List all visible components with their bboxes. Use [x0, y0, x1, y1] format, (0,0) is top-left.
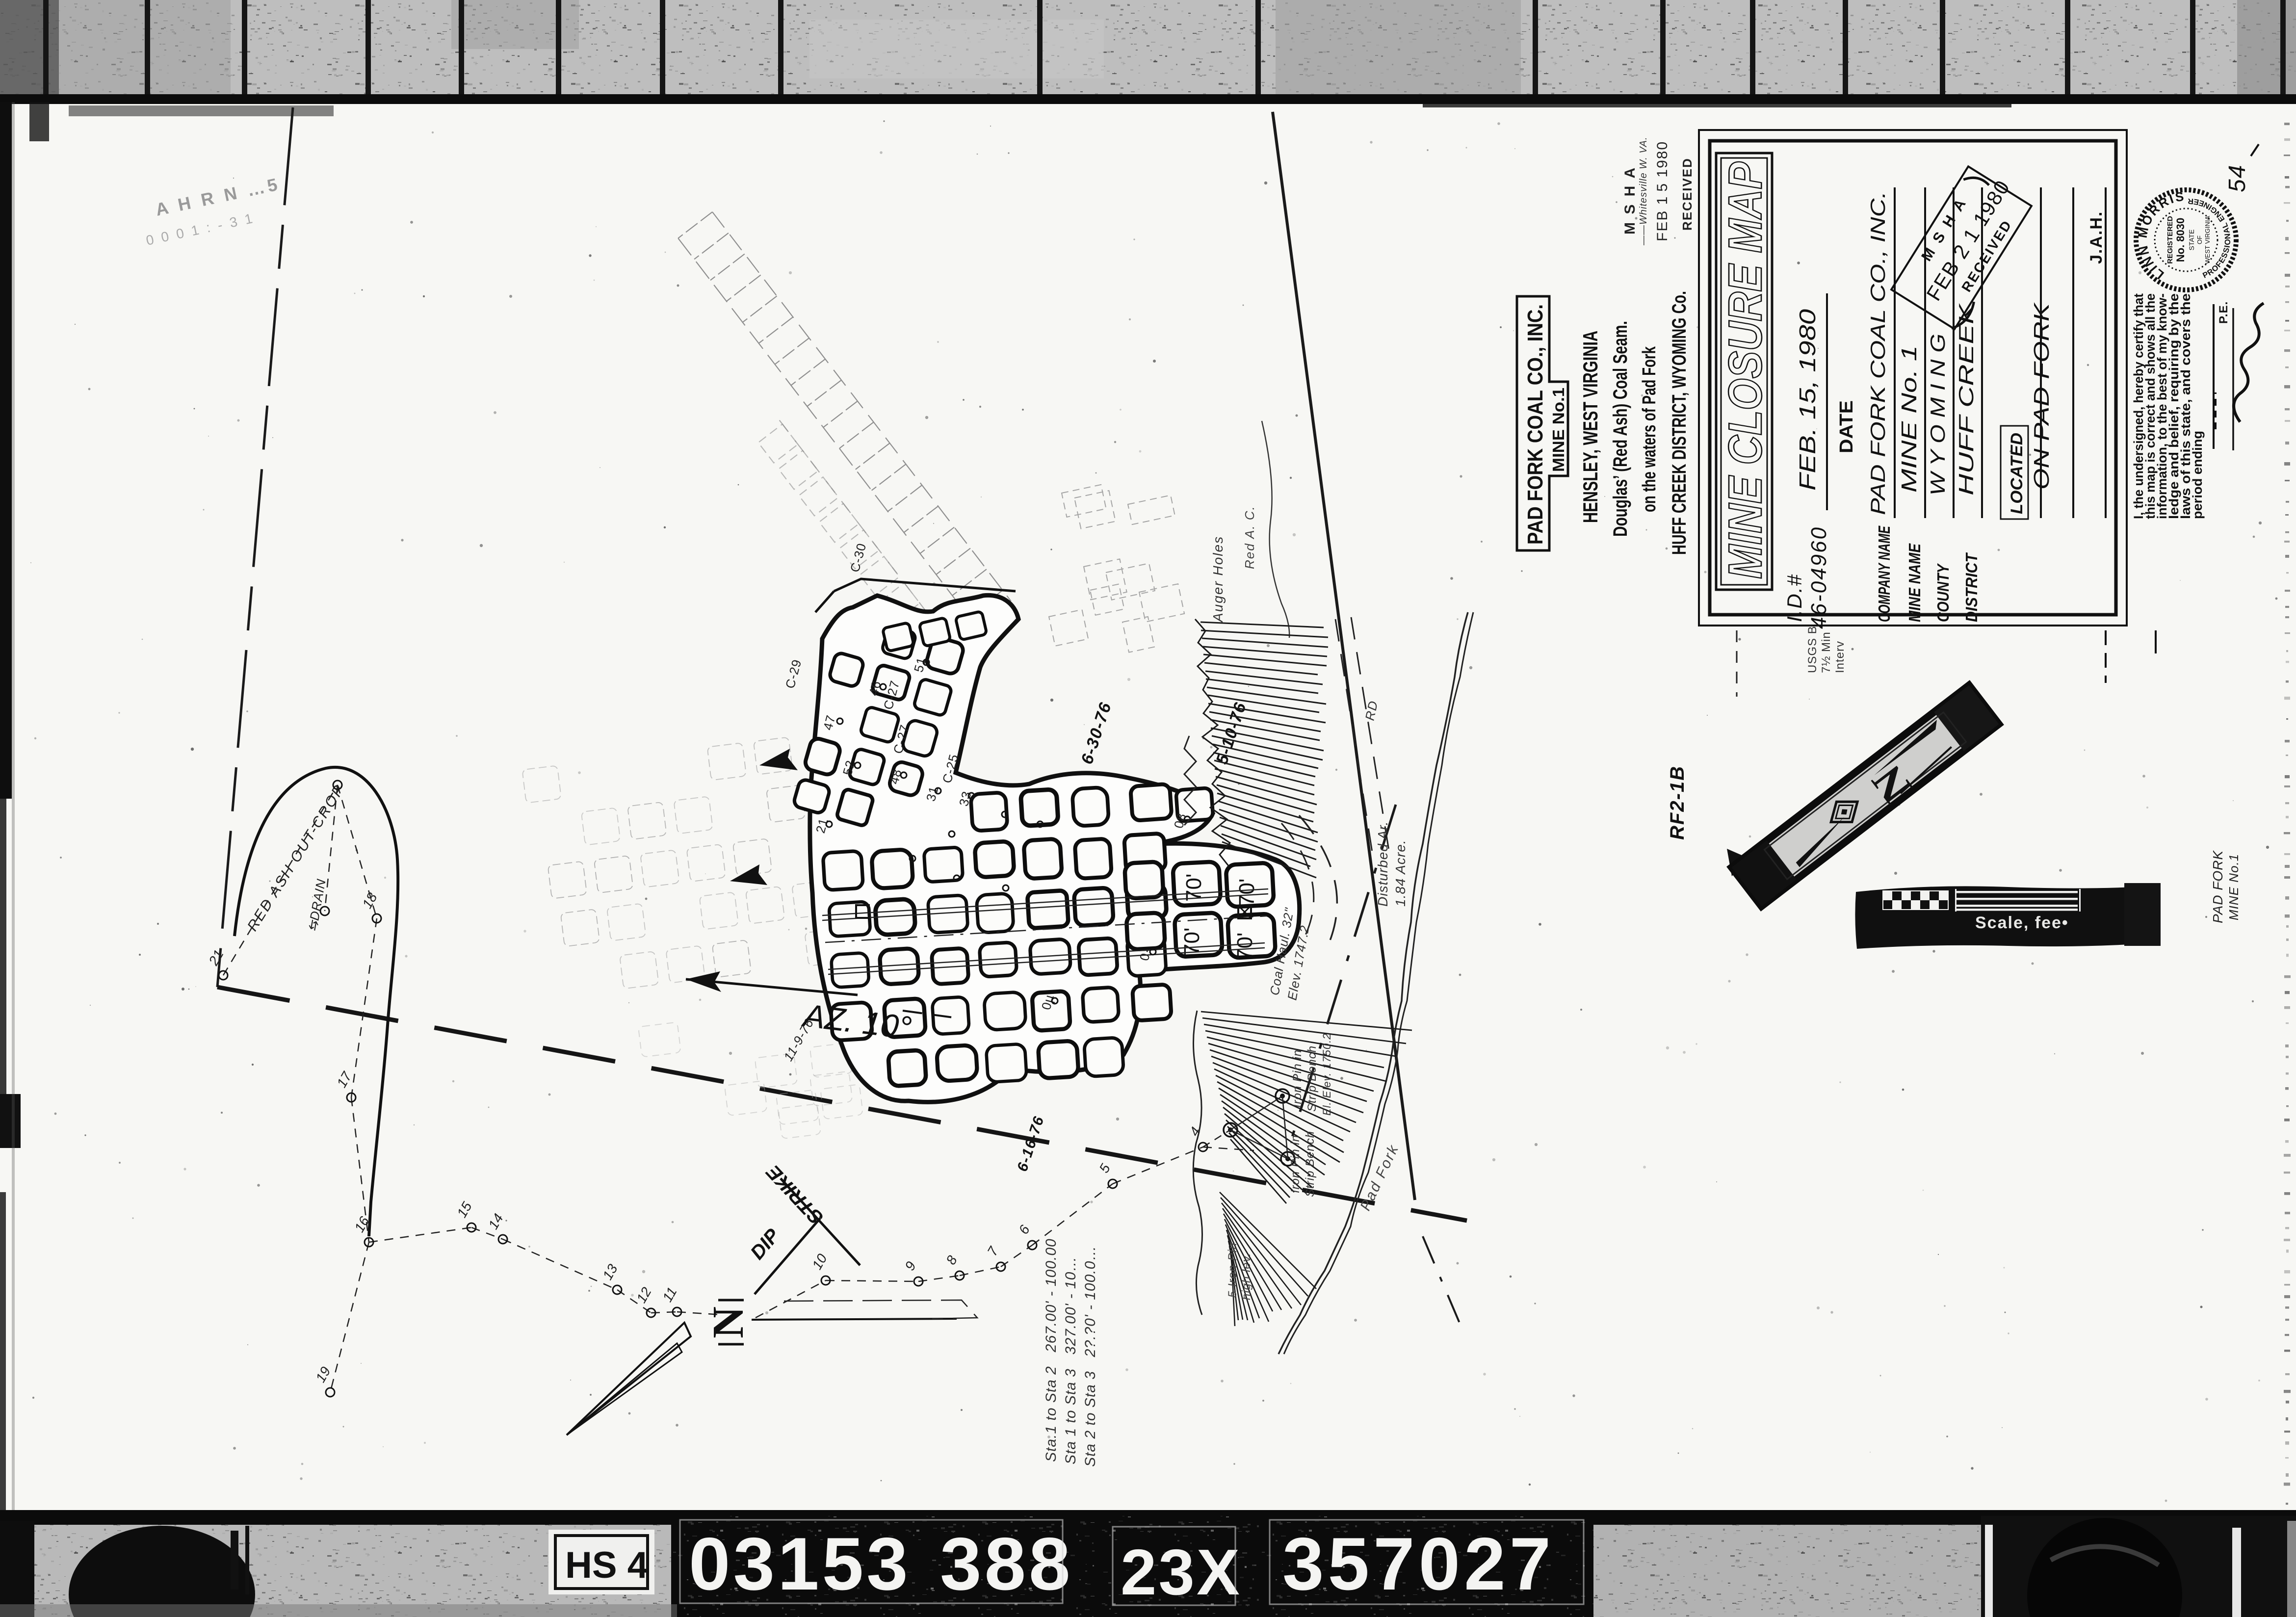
svg-text:STATE: STATE [2188, 229, 2195, 250]
svg-text:70': 70' [1233, 933, 1257, 961]
svg-text:HUFF CREEK DISTRICT, WYOMING C: HUFF CREEK DISTRICT, WYOMING Co. [1669, 291, 1690, 555]
svg-text:HS 4: HS 4 [565, 1544, 648, 1586]
svg-text:Red A. C.: Red A. C. [1242, 505, 1257, 569]
svg-text:Strip Bench: Strip Bench [1305, 1045, 1319, 1112]
svg-text:COUNTY: COUNTY [1934, 563, 1952, 622]
svg-text:W Y O M I N G: W Y O M I N G [1926, 334, 1949, 496]
svg-text:54: 54 [2224, 164, 2250, 192]
svg-text:5 Iron Pin: 5 Iron Pin [1226, 1242, 1239, 1298]
svg-text:MINE No.1: MINE No.1 [1549, 388, 1567, 472]
svg-text:46-04960: 46-04960 [1807, 526, 1831, 629]
svg-text:23X: 23X [1121, 1536, 1242, 1608]
svg-text:Iron Pin in: Iron Pin in [1291, 1049, 1304, 1108]
svg-text:USGS B: USGS B [1806, 626, 1819, 673]
svg-text:MINE CLOSURE MAP: MINE CLOSURE MAP [1719, 161, 1772, 579]
svg-text:OF: OF [2196, 235, 2203, 244]
svg-text:Sta 1 to Sta 3 327.00' - 10…: Sta 1 to Sta 3 327.00' - 10… [1063, 1256, 1079, 1464]
svg-text:No. 8030: No. 8030 [2174, 218, 2187, 262]
svg-text:MINE NAME: MINE NAME [1905, 543, 1924, 622]
svg-text:high lev.: high lev. [1240, 1252, 1253, 1300]
svg-text:70': 70' [1235, 879, 1259, 907]
svg-text:388: 388 [940, 1522, 1073, 1606]
svg-text:Interv: Interv [1833, 641, 1847, 673]
svg-text:I.D.#: I.D.# [1783, 574, 1806, 622]
svg-text:on the waters of Pad Fork: on the waters of Pad Fork [1639, 346, 1660, 512]
svg-text:Strip Bench: Strip Bench [1304, 1131, 1317, 1197]
svg-text:HENSLEY, WEST VIRGINIA: HENSLEY, WEST VIRGINIA [1579, 331, 1602, 523]
svg-text:RECEIVED: RECEIVED [1680, 157, 1695, 231]
svg-text:COMPANY NAME: COMPANY NAME [1875, 525, 1893, 622]
svg-text:REGISTERED: REGISTERED [2166, 216, 2174, 264]
svg-text:P.E.: P.E. [2217, 301, 2230, 324]
svg-text:HUFF CREEK: HUFF CREEK [1955, 303, 1978, 496]
svg-text:DISTRICT: DISTRICT [1962, 552, 1981, 622]
svg-text:LOCATED: LOCATED [2008, 433, 2026, 514]
svg-text:Auger Holes: Auger Holes [1210, 536, 1226, 623]
svg-text:J.A.H.: J.A.H. [2087, 211, 2106, 264]
svg-text:RF2-1B: RF2-1B [1667, 765, 1688, 840]
svg-text:PAD FORK COAL CO., INC.: PAD FORK COAL CO., INC. [1523, 304, 1547, 545]
svg-text:——Whitesville W. VA.: ——Whitesville W. VA. [1638, 136, 1649, 246]
svg-text:DATE: DATE [1836, 400, 1857, 453]
svg-text:Sta 2 to Sta 3 2?.?0' - 100.: Sta 2 to Sta 3 2?.?0' - 100.0… [1082, 1246, 1098, 1467]
svg-text:M S H A: M S H A [1622, 166, 1638, 235]
svg-text:PAD FORK: PAD FORK [2210, 850, 2225, 923]
svg-text:Scale, fee•: Scale, fee• [1975, 913, 2069, 932]
svg-text:Disturbed Ar.: Disturbed Ar. [1375, 821, 1390, 907]
svg-text:El. Elev. 1750.2: El. Elev. 1750.2 [1321, 1033, 1333, 1116]
svg-text:FEB. 15, 1980: FEB. 15, 1980 [1795, 309, 1820, 491]
svg-text:Douglas’ (Red Ash) Coal Seam.: Douglas’ (Red Ash) Coal Seam. [1610, 321, 1631, 537]
svg-text:03153: 03153 [689, 1522, 911, 1606]
svg-text:WEST VIRGINIA: WEST VIRGINIA [2204, 216, 2211, 264]
svg-text:Iron Pin in: Iron Pin in [1289, 1135, 1302, 1193]
svg-text:FEB 1 5 1980: FEB 1 5 1980 [1654, 141, 1670, 241]
svg-text:MINE No.1: MINE No.1 [2226, 854, 2241, 920]
svg-text:N: N [704, 1306, 753, 1338]
svg-text:357027: 357027 [1282, 1522, 1555, 1606]
svg-text:7½ Min: 7½ Min [1820, 631, 1833, 673]
svg-text:MINE No. 1: MINE No. 1 [1897, 345, 1921, 493]
svg-text:PAD FORK COAL CO., INC.: PAD FORK COAL CO., INC. [1866, 191, 1889, 515]
svg-text:1.84 Acre.: 1.84 Acre. [1393, 839, 1408, 907]
svg-text:Sta.1 to Sta 2 267.00' - 100: Sta.1 to Sta 2 267.00' - 100.00 [1043, 1238, 1059, 1462]
svg-text:period ending: period ending [2190, 431, 2205, 519]
